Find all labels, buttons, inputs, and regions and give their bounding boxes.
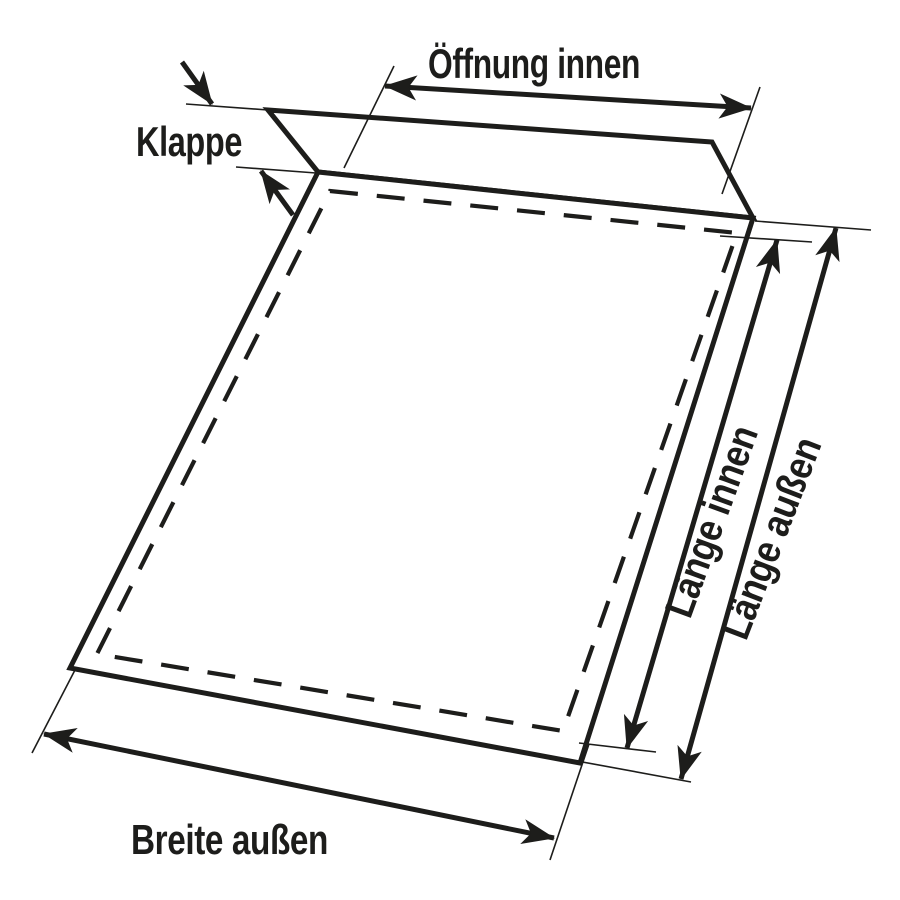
extension-line-laenge-innen-bottom: [579, 743, 656, 752]
pointer-arrow-klappe-top: [182, 62, 212, 104]
label-oeffnung-innen: Öffnung innen: [428, 40, 640, 87]
extension-line-oeffnung-right: [722, 87, 760, 194]
label-klappe: Klappe: [136, 118, 242, 165]
extension-line-klappe-bottom: [236, 167, 316, 173]
extension-line-klappe-top: [186, 104, 268, 110]
envelope-dimension-diagram: Öffnung innen Klappe Breite außen Länge …: [0, 0, 900, 900]
extension-line-laenge-aussen-top: [755, 221, 871, 230]
pointer-arrow-klappe-bottom: [261, 171, 293, 215]
extension-line-laenge-aussen-bottom: [577, 761, 691, 782]
label-breite-aussen: Breite außen: [131, 816, 328, 863]
linework: Öffnung innen Klappe Breite außen Länge …: [32, 40, 871, 863]
diagram-canvas: Öffnung innen Klappe Breite außen Länge …: [0, 0, 900, 900]
dimension-arrow-oeffnung-innen: [385, 86, 751, 108]
